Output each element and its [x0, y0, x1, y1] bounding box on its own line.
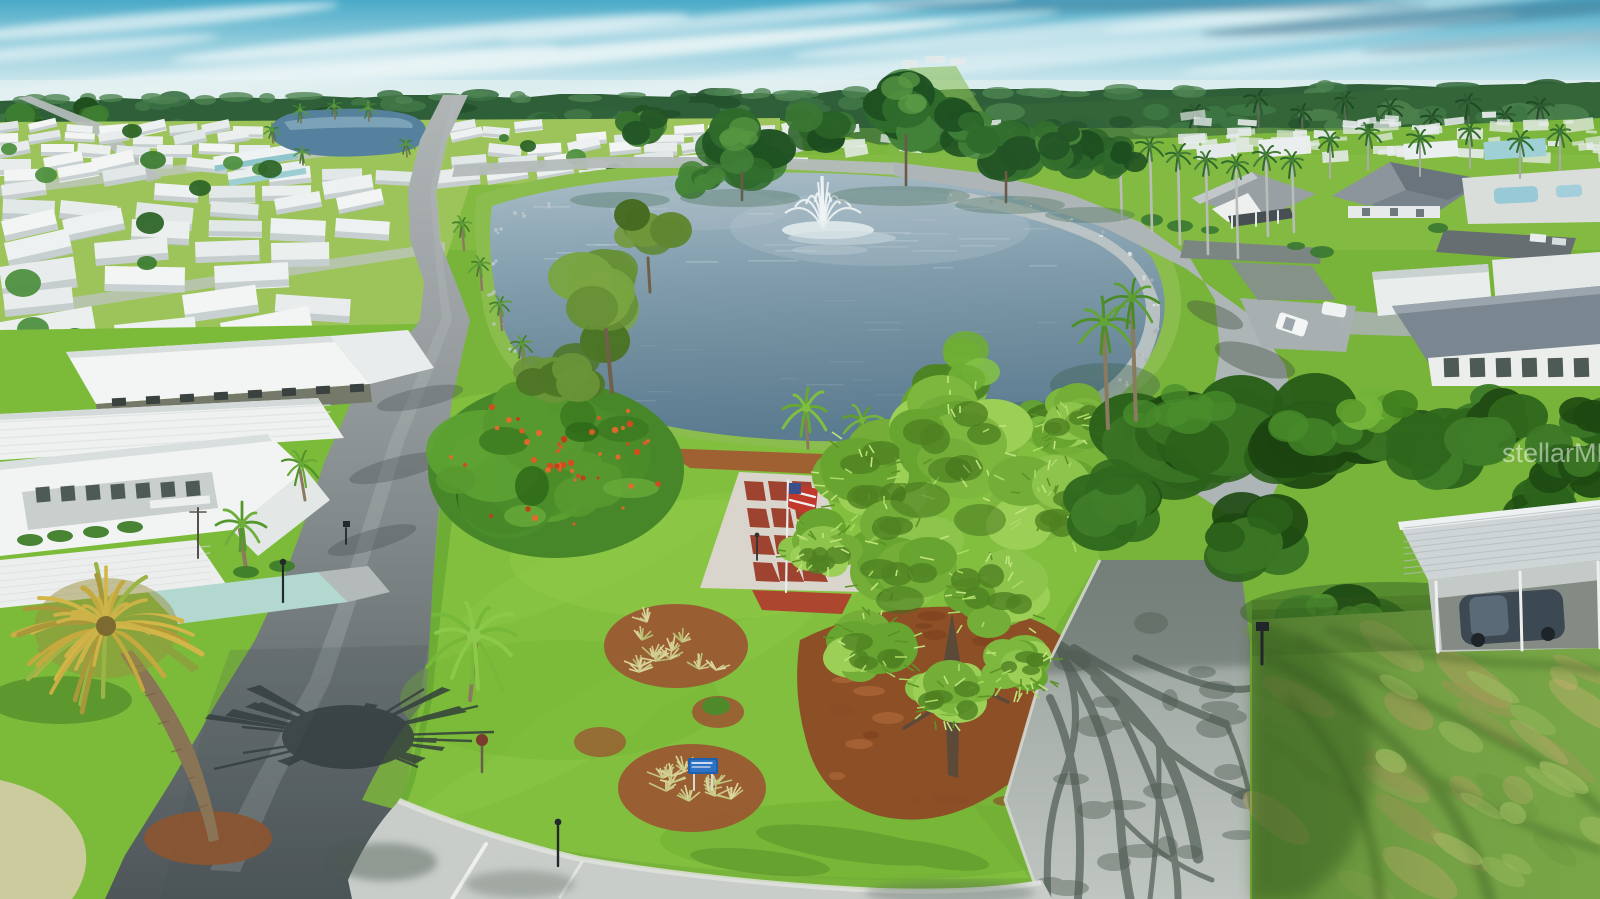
svg-text:stellarMLS: stellarMLS	[1502, 438, 1600, 468]
